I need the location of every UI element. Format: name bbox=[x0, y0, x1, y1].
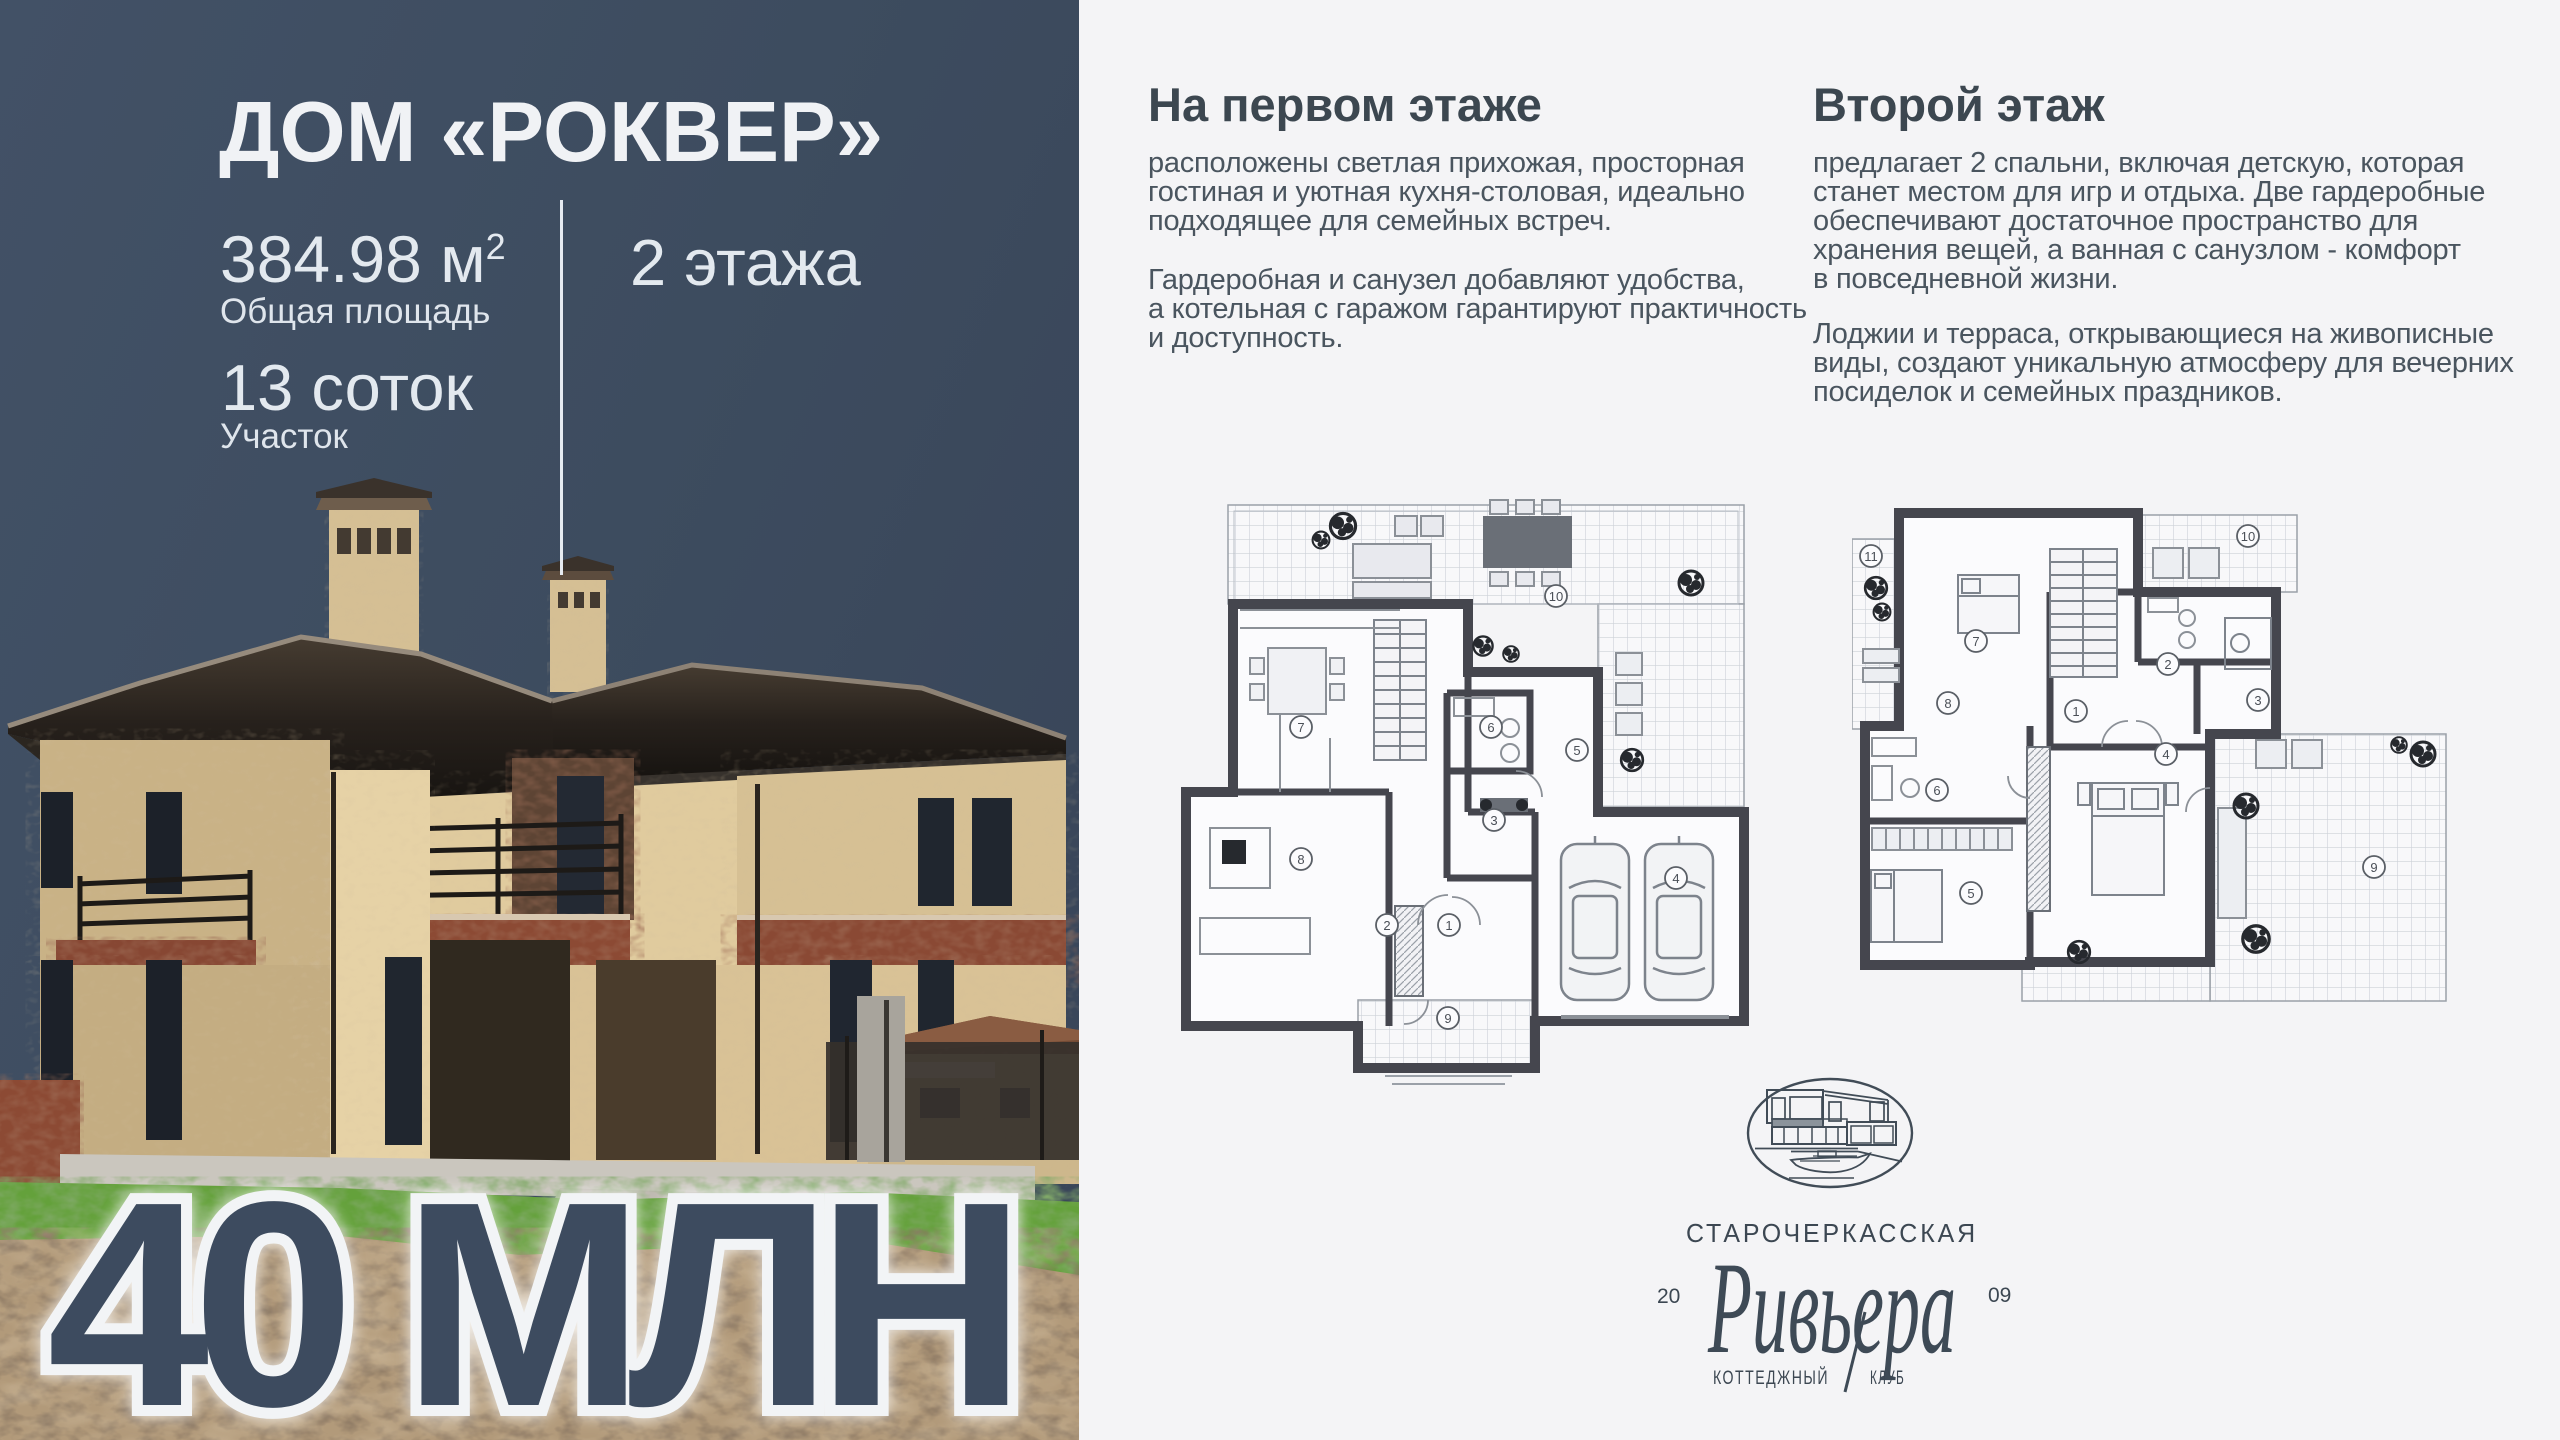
svg-text:9: 9 bbox=[1444, 1011, 1451, 1026]
svg-text:3: 3 bbox=[1490, 813, 1497, 828]
svg-text:1: 1 bbox=[2072, 704, 2079, 719]
svg-text:2: 2 bbox=[1383, 918, 1390, 933]
svg-text:6: 6 bbox=[1487, 720, 1494, 735]
svg-text:5: 5 bbox=[1967, 886, 1974, 901]
svg-text:КОТТЕДЖНЫЙ: КОТТЕДЖНЫЙ bbox=[1713, 1367, 1829, 1389]
svg-text:6: 6 bbox=[1933, 783, 1940, 798]
svg-text:3: 3 bbox=[2254, 693, 2261, 708]
svg-text:1: 1 bbox=[1445, 918, 1452, 933]
svg-text:10: 10 bbox=[2241, 529, 2255, 544]
svg-text:09: 09 bbox=[1988, 1284, 2011, 1307]
svg-text:4: 4 bbox=[1672, 871, 1679, 886]
svg-text:КЛУБ: КЛУБ bbox=[1870, 1368, 1905, 1389]
svg-text:20: 20 bbox=[1657, 1285, 1680, 1308]
svg-text:10: 10 bbox=[1549, 589, 1563, 604]
svg-text:7: 7 bbox=[1297, 720, 1304, 735]
svg-text:Ривьера: Ривьера bbox=[1707, 1234, 1956, 1381]
svg-text:4: 4 bbox=[2162, 747, 2169, 762]
svg-text:8: 8 bbox=[1297, 852, 1304, 867]
svg-text:8: 8 bbox=[1944, 696, 1951, 711]
svg-text:5: 5 bbox=[1573, 743, 1580, 758]
svg-text:11: 11 bbox=[1864, 549, 1878, 564]
svg-text:7: 7 bbox=[1972, 634, 1979, 649]
svg-text:9: 9 bbox=[2370, 860, 2377, 875]
svg-text:2: 2 bbox=[2164, 657, 2171, 672]
